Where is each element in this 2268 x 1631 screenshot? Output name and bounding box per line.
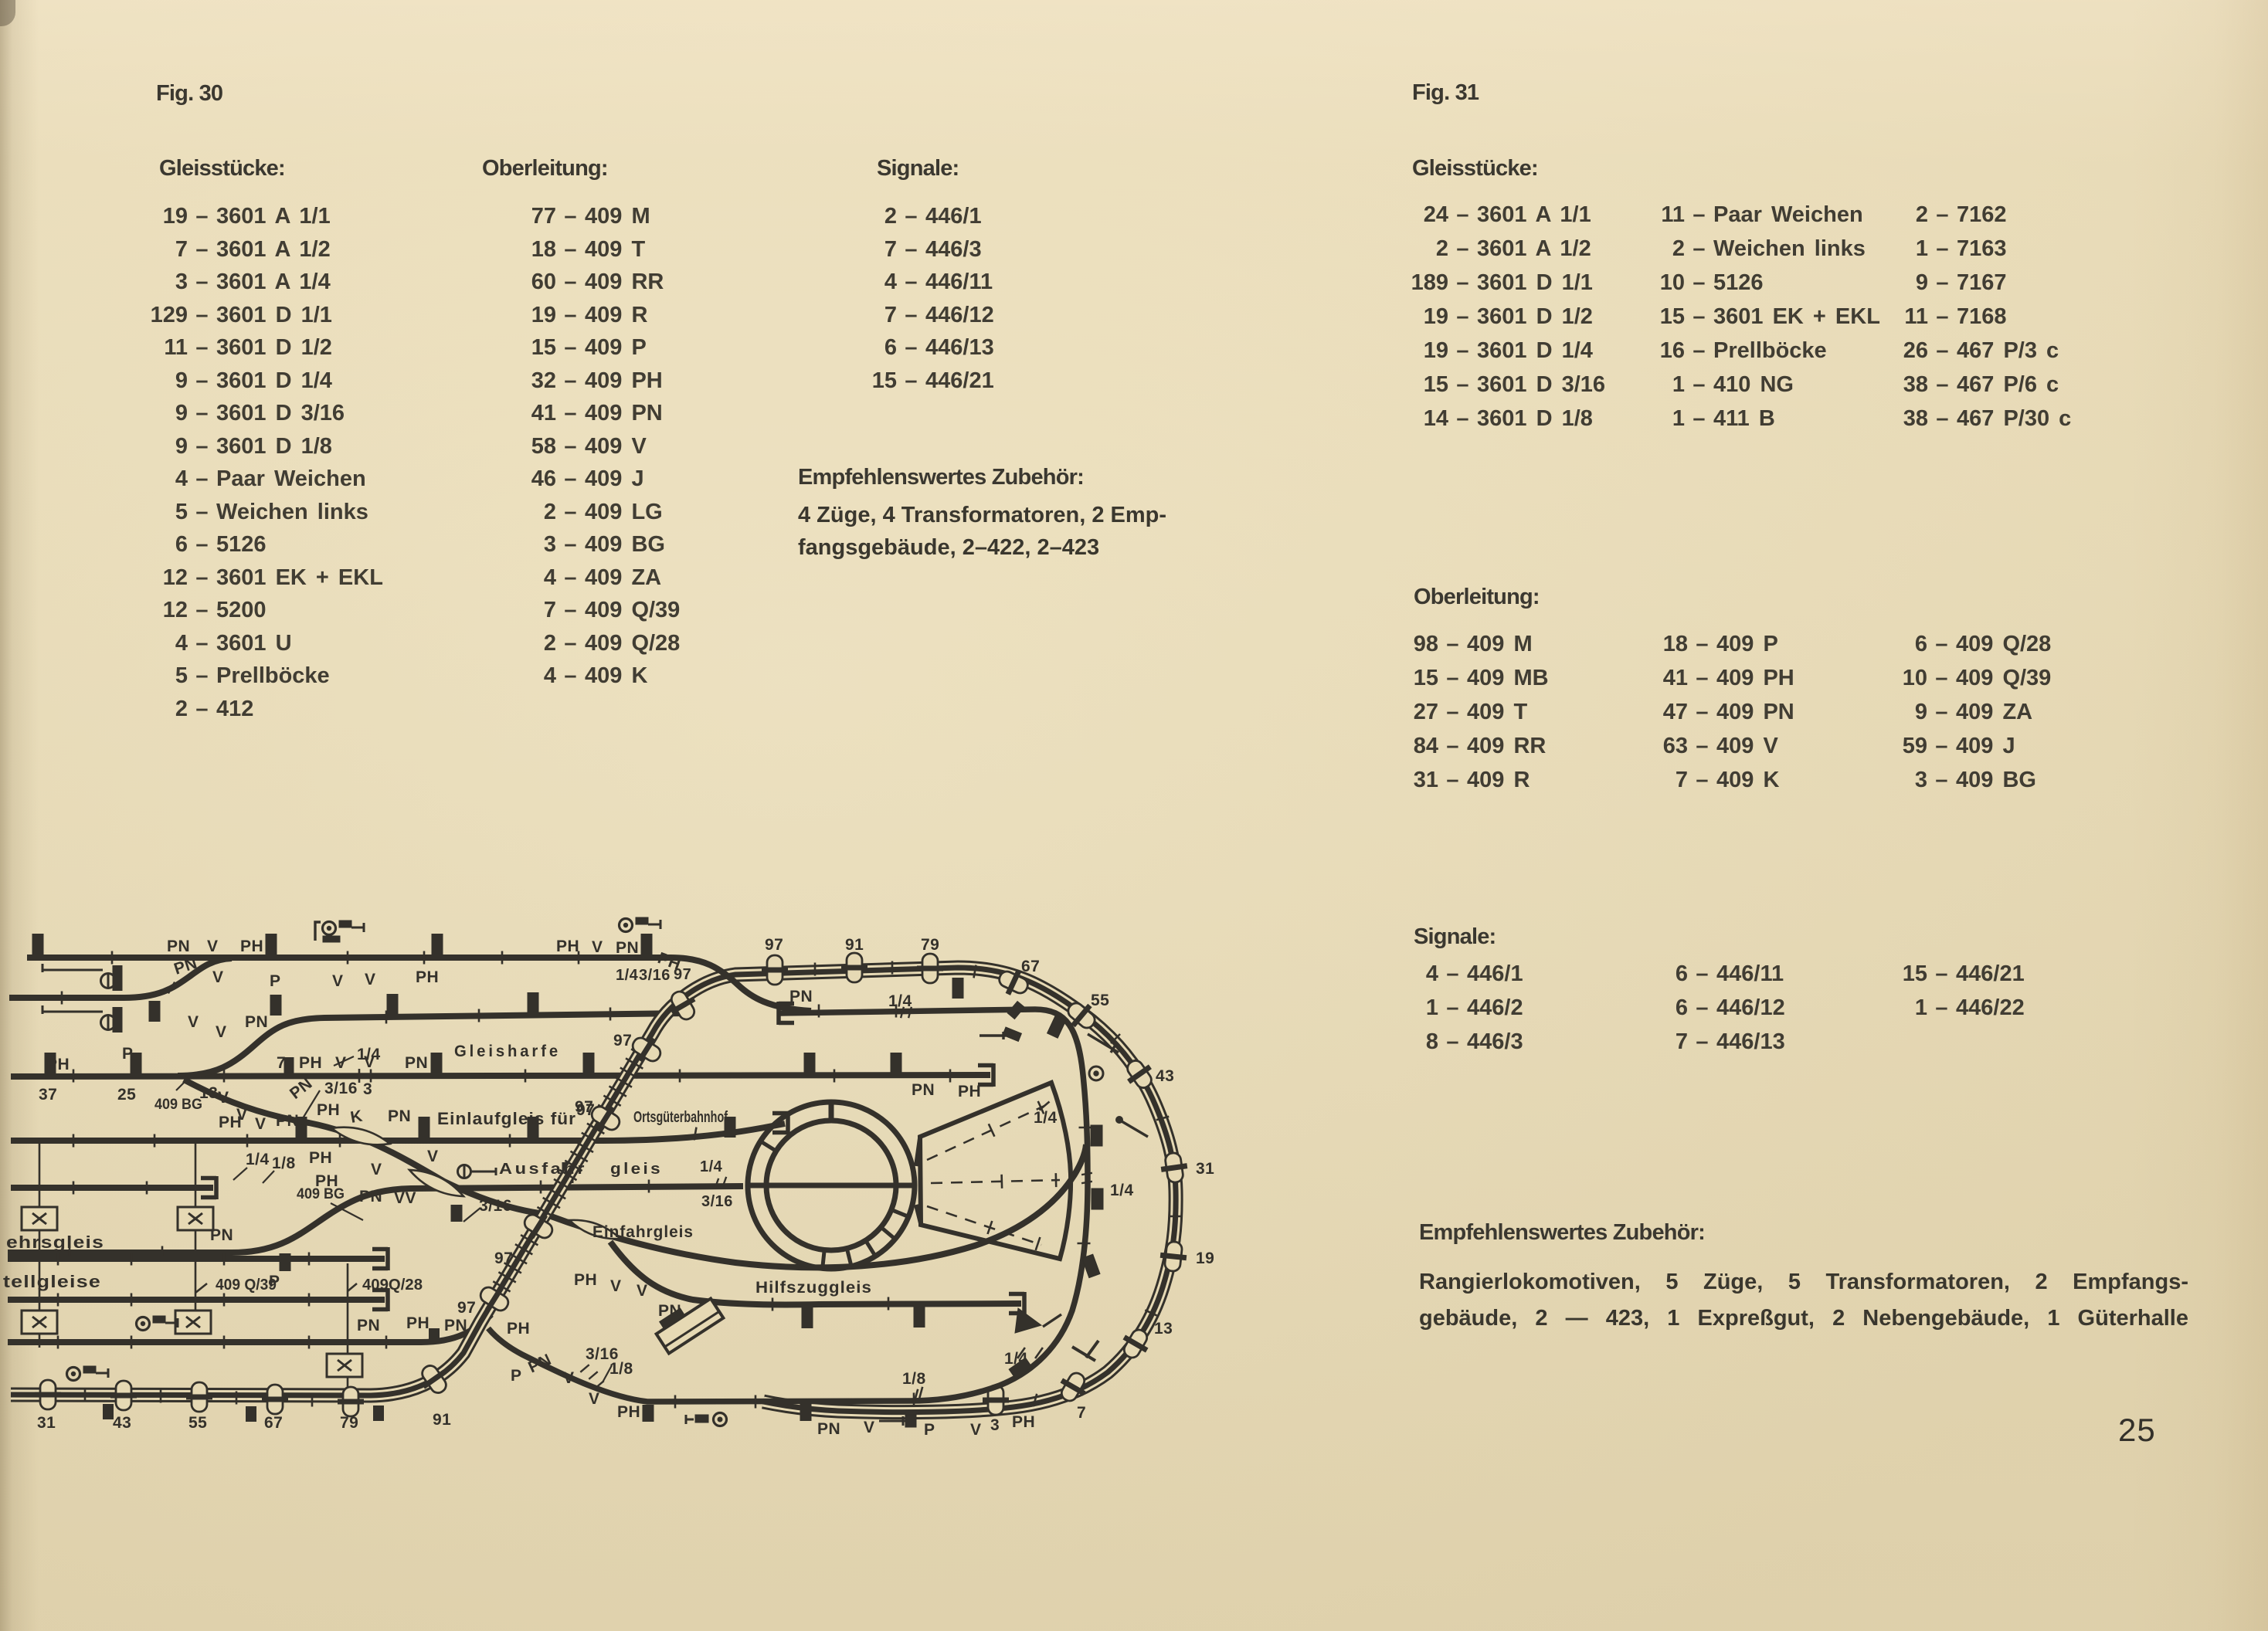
- svg-text:7: 7: [1077, 1404, 1086, 1422]
- svg-text:409Q/28: 409Q/28: [362, 1277, 423, 1294]
- svg-text:PN: PN: [616, 939, 639, 957]
- svg-text:V: V: [970, 1421, 982, 1439]
- svg-text:25: 25: [117, 1086, 136, 1104]
- svg-text:13: 13: [1154, 1320, 1173, 1338]
- svg-text:V: V: [332, 972, 344, 990]
- svg-text:67: 67: [264, 1414, 283, 1432]
- svg-text:PN: PN: [276, 1112, 299, 1130]
- svg-text:PN: PN: [525, 1351, 554, 1377]
- svg-text:1/8: 1/8: [902, 1370, 926, 1388]
- svg-text:7: 7: [277, 1054, 286, 1072]
- svg-text:gleis: gleis: [610, 1161, 663, 1178]
- svg-text:Gleisharfe: Gleisharfe: [454, 1043, 561, 1060]
- svg-text:55: 55: [1091, 992, 1109, 1009]
- svg-text:V: V: [563, 1369, 575, 1387]
- svg-text:Ausfahr: Ausfahr: [499, 1161, 587, 1178]
- svg-text:PH: PH: [240, 938, 263, 955]
- svg-text:3/16: 3/16: [479, 1197, 512, 1215]
- svg-text:V: V: [637, 1282, 648, 1300]
- svg-text:V: V: [216, 1023, 227, 1041]
- svg-text:P: P: [511, 1367, 522, 1385]
- svg-text:V: V: [427, 1148, 439, 1165]
- svg-text:3/16: 3/16: [639, 967, 671, 984]
- svg-text:PH: PH: [46, 1056, 70, 1073]
- svg-text:19: 19: [1196, 1250, 1214, 1267]
- svg-text:1/8: 1/8: [272, 1155, 296, 1172]
- svg-text:97: 97: [575, 1098, 593, 1116]
- svg-text:3/16: 3/16: [701, 1193, 733, 1210]
- svg-text:PH: PH: [219, 1114, 242, 1131]
- svg-text:V: V: [592, 938, 603, 956]
- svg-text:PN: PN: [245, 1013, 268, 1031]
- svg-text:V: V: [207, 938, 219, 955]
- svg-text:97: 97: [765, 936, 783, 954]
- svg-text:37: 37: [39, 1086, 57, 1104]
- svg-text:13: 13: [199, 1084, 218, 1102]
- svg-text:31: 31: [1196, 1160, 1214, 1178]
- svg-text:V: V: [212, 968, 224, 986]
- svg-text:409 BG: 409 BG: [154, 1097, 202, 1113]
- svg-text:PN: PN: [359, 1188, 382, 1205]
- svg-text:55: 55: [188, 1414, 207, 1432]
- svg-text:3: 3: [990, 1416, 1000, 1434]
- svg-text:P: P: [924, 1421, 935, 1439]
- svg-text:409 BG: 409 BG: [297, 1186, 345, 1202]
- svg-text:PN: PN: [912, 1081, 935, 1099]
- svg-text:3: 3: [363, 1080, 372, 1098]
- svg-text:PN: PN: [444, 1317, 467, 1334]
- svg-text:ehrsgleis: ehrsgleis: [6, 1233, 104, 1252]
- svg-text:PH: PH: [617, 1403, 640, 1421]
- svg-text:Hilfszuggleis: Hilfszuggleis: [755, 1279, 872, 1297]
- svg-text:V: V: [255, 1115, 267, 1133]
- svg-text:PH: PH: [309, 1149, 332, 1167]
- svg-text:3/16: 3/16: [324, 1080, 358, 1097]
- svg-text:1/8: 1/8: [609, 1360, 633, 1378]
- svg-text:PH: PH: [416, 968, 439, 986]
- svg-text:V: V: [589, 1390, 600, 1408]
- svg-text:V: V: [335, 1054, 347, 1072]
- svg-text:43: 43: [113, 1414, 131, 1432]
- svg-text:1/4: 1/4: [1004, 1350, 1028, 1368]
- svg-text:V: V: [864, 1419, 875, 1436]
- svg-text:PN: PN: [405, 1054, 428, 1072]
- svg-text:VV: VV: [394, 1189, 416, 1207]
- svg-text:97: 97: [674, 966, 691, 983]
- svg-text:P: P: [269, 1273, 280, 1290]
- svg-text:Ortsgüterbahnhof: Ortsgüterbahnhof: [633, 1109, 728, 1126]
- svg-text:tellgleise: tellgleise: [3, 1272, 101, 1291]
- svg-text:PN: PN: [167, 938, 190, 955]
- svg-text:Einfahrgleis: Einfahrgleis: [592, 1223, 694, 1241]
- svg-text:1/4: 1/4: [1110, 1182, 1134, 1199]
- svg-text:PN: PN: [388, 1107, 411, 1125]
- svg-text:97: 97: [494, 1250, 513, 1267]
- svg-text:PN: PN: [789, 988, 813, 1005]
- svg-text:97: 97: [457, 1299, 476, 1317]
- svg-text:V: V: [365, 971, 376, 988]
- svg-text:43: 43: [1156, 1067, 1174, 1085]
- svg-text:PH: PH: [574, 1271, 597, 1289]
- svg-text:V: V: [188, 1013, 199, 1031]
- svg-text:PN: PN: [357, 1317, 380, 1334]
- svg-text:PH: PH: [556, 938, 579, 955]
- svg-text:91: 91: [433, 1411, 451, 1429]
- svg-text:97: 97: [613, 1032, 632, 1049]
- svg-text:V: V: [610, 1277, 622, 1295]
- svg-text:1/4: 1/4: [616, 967, 639, 984]
- svg-text:P: P: [122, 1045, 134, 1063]
- svg-text:79: 79: [340, 1414, 358, 1432]
- svg-text:PN: PN: [658, 1302, 681, 1320]
- svg-text:PH: PH: [958, 1083, 981, 1100]
- svg-text:PH: PH: [299, 1054, 322, 1072]
- svg-text:V: V: [364, 1053, 375, 1071]
- svg-text:PH: PH: [406, 1314, 429, 1332]
- svg-text:PH: PH: [317, 1101, 340, 1119]
- svg-text:P: P: [270, 972, 281, 990]
- svg-text:V: V: [218, 1089, 229, 1107]
- svg-text:PH: PH: [1012, 1413, 1035, 1431]
- svg-text:1/4: 1/4: [246, 1151, 270, 1168]
- svg-text:67: 67: [1021, 958, 1040, 975]
- svg-text:79: 79: [921, 936, 939, 954]
- svg-text:K: K: [349, 1107, 364, 1127]
- svg-text:409 Q/39: 409 Q/39: [216, 1277, 277, 1294]
- svg-text:91: 91: [845, 936, 864, 954]
- svg-text:Einlaufgleis für: Einlaufgleis für: [437, 1109, 576, 1128]
- svg-text:31: 31: [37, 1414, 56, 1432]
- svg-text:1/4: 1/4: [700, 1158, 723, 1175]
- svg-text:PN: PN: [817, 1420, 840, 1438]
- svg-text:1/4: 1/4: [888, 992, 912, 1010]
- svg-text:PN: PN: [210, 1226, 233, 1244]
- svg-text:V: V: [371, 1161, 382, 1178]
- svg-text:PH: PH: [507, 1320, 530, 1338]
- svg-text:1/4: 1/4: [1034, 1109, 1058, 1127]
